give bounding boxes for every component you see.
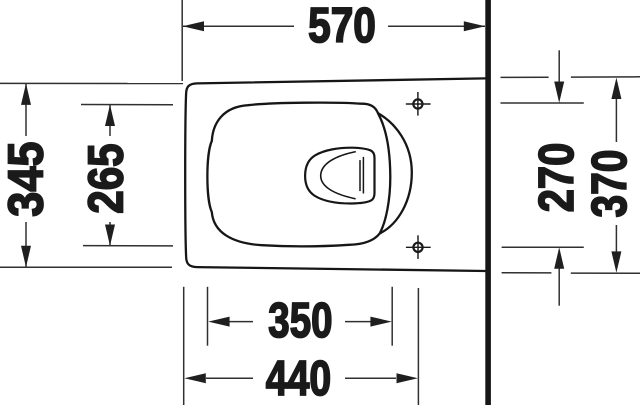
svg-text:440: 440	[266, 352, 331, 405]
svg-text:265: 265	[78, 143, 133, 213]
svg-text:270: 270	[529, 143, 584, 212]
svg-text:350: 350	[268, 294, 332, 349]
svg-text:345: 345	[0, 141, 53, 216]
svg-text:570: 570	[308, 0, 376, 53]
svg-text:370: 370	[582, 150, 637, 218]
